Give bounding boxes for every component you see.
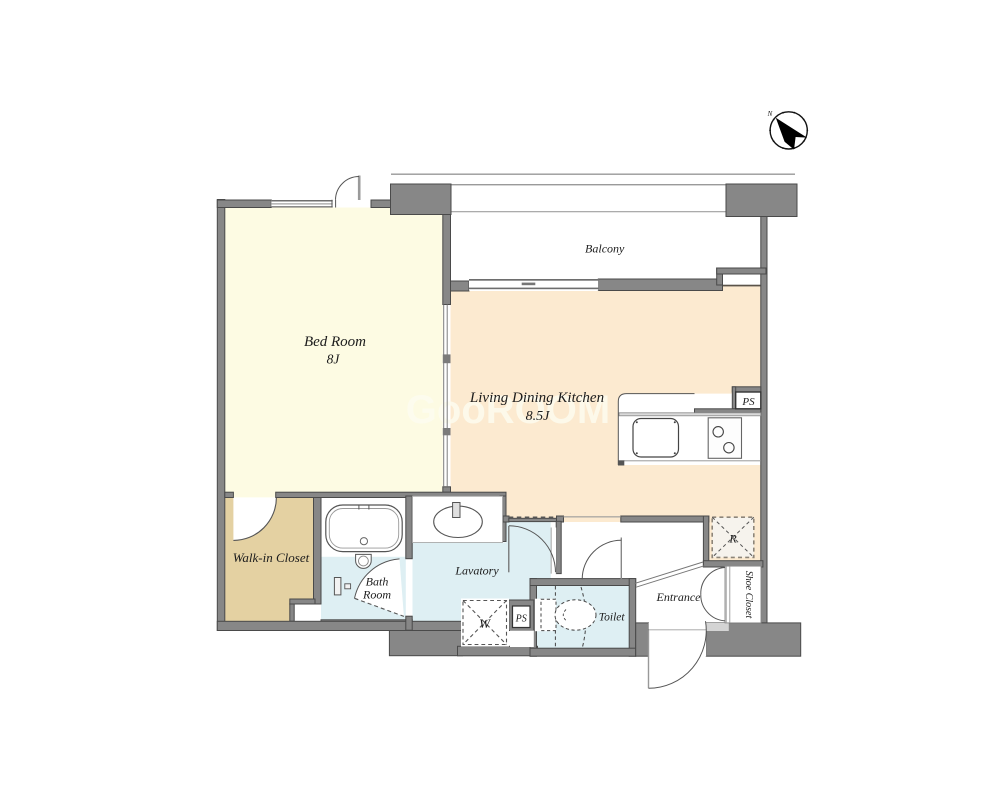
svg-text:N: N — [767, 110, 773, 118]
svg-text:Bed Room: Bed Room — [304, 334, 366, 350]
svg-text:8.5J: 8.5J — [526, 409, 551, 424]
svg-text:Balcony: Balcony — [585, 242, 625, 256]
svg-text:Bath: Bath — [366, 575, 389, 589]
svg-text:W: W — [479, 616, 491, 631]
svg-text:8J: 8J — [327, 352, 341, 367]
svg-text:R: R — [728, 532, 737, 546]
svg-text:Lavatory: Lavatory — [454, 564, 499, 578]
svg-text:Entrance: Entrance — [656, 590, 702, 604]
svg-text:Shoe Closet: Shoe Closet — [743, 571, 754, 619]
svg-text:PS: PS — [741, 396, 755, 408]
svg-text:Walk-in Closet: Walk-in Closet — [233, 550, 310, 565]
svg-text:Room: Room — [362, 588, 391, 602]
svg-text:PS: PS — [515, 614, 527, 625]
svg-text:Toilet: Toilet — [599, 611, 626, 623]
svg-text:Living Dining Kitchen: Living Dining Kitchen — [469, 390, 604, 406]
